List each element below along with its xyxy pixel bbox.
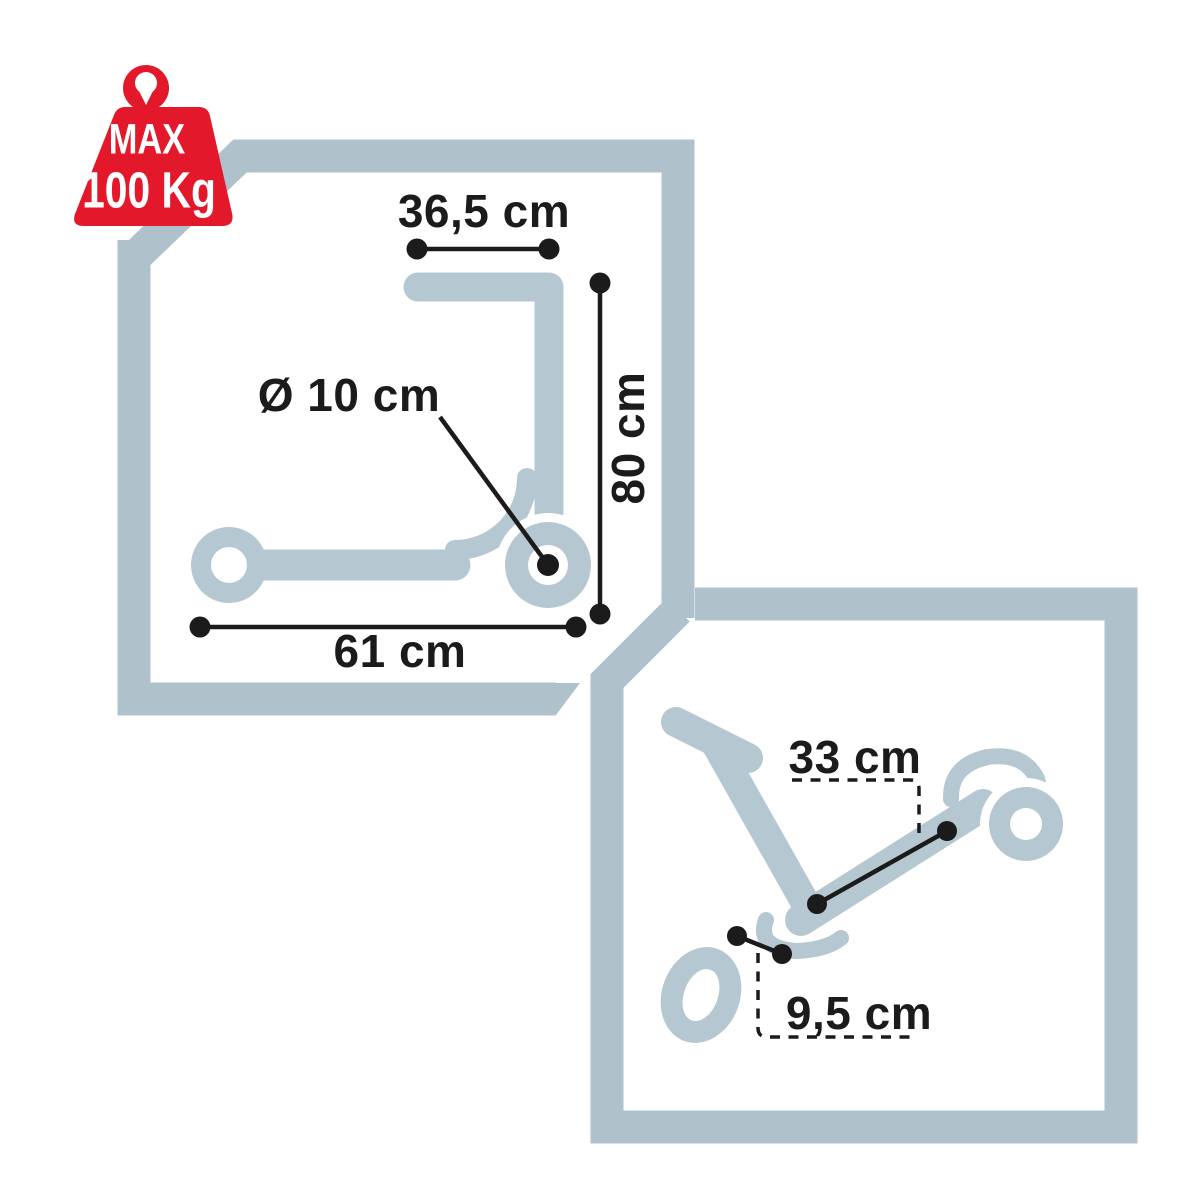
folded-length-line xyxy=(817,831,947,904)
folded-height-label: 9,5 cm xyxy=(786,986,932,1040)
folded-front-wheel-icon xyxy=(648,936,755,1055)
height-label: 80 cm xyxy=(601,372,655,505)
folded-length-leader-line xyxy=(792,780,919,839)
length-label: 61 cm xyxy=(334,624,467,678)
handlebar-width-label: 36,5 cm xyxy=(398,184,570,238)
dimensions-diagram: MAX 100 Kg 36,5 cm 80 cm Ø 10 cm 61 cm 3… xyxy=(0,0,1200,1200)
badge-weight-label: 100 Kg xyxy=(82,161,216,220)
wheel-diameter-label: Ø 10 cm xyxy=(258,368,441,422)
folded-length-label: 33 cm xyxy=(789,730,922,784)
badge-max-label: MAX xyxy=(109,116,185,165)
